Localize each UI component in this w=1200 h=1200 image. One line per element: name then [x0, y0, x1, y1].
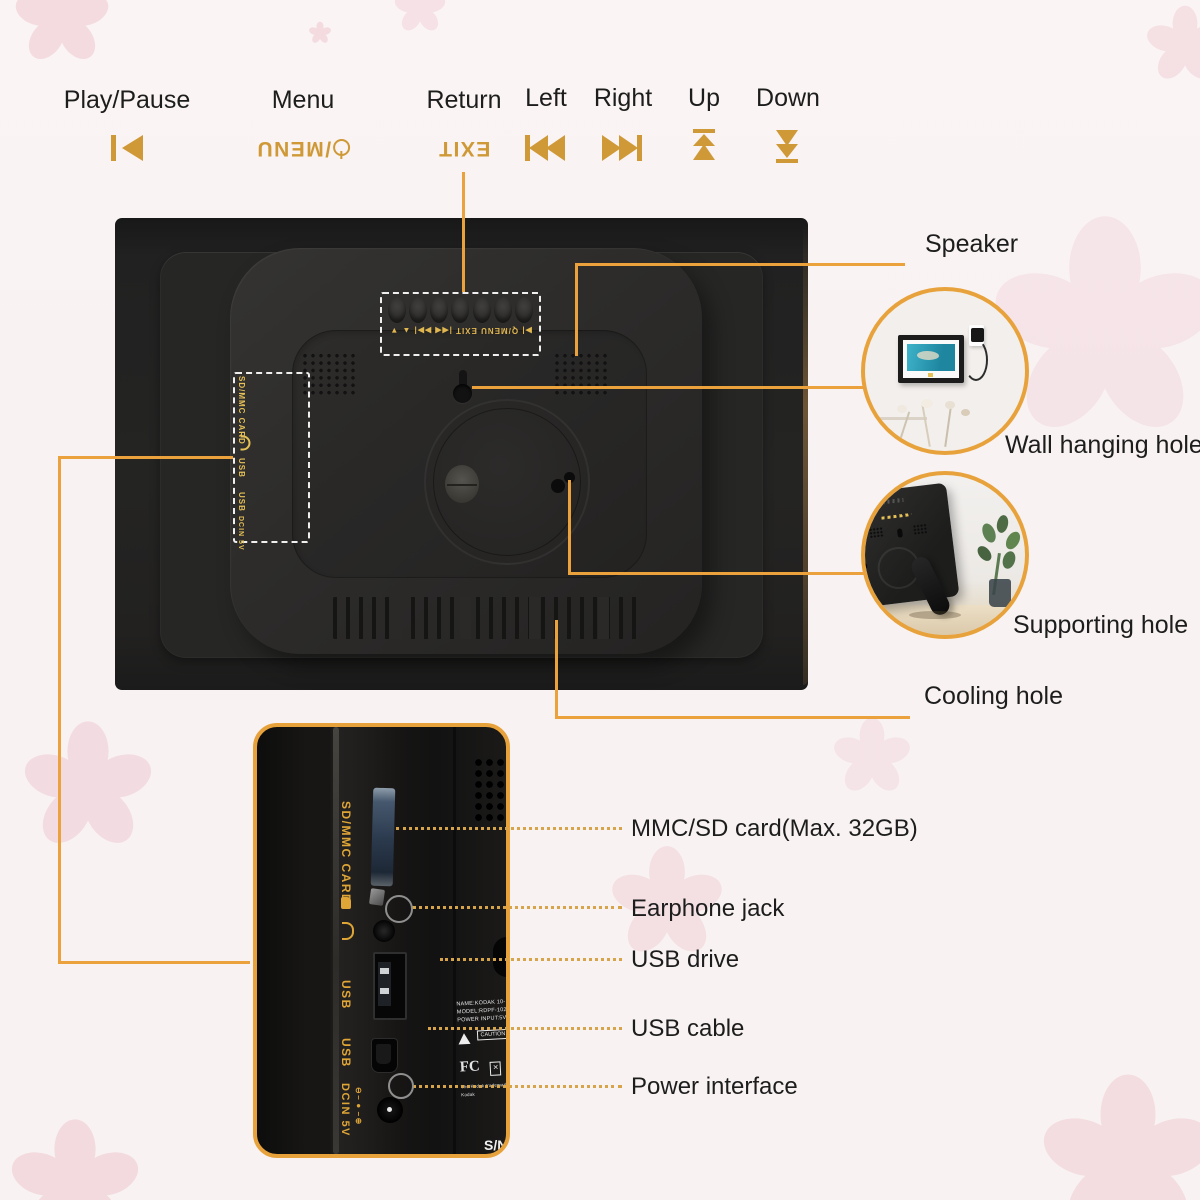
mmc-sd-card-label: MMC/SD card(Max. 32GB): [631, 815, 918, 843]
earphone-ring-marker: [385, 895, 413, 923]
side-ports-callout-line-v: [58, 456, 61, 964]
sticker-power-line: POWER INPUT:5V: [457, 1014, 510, 1025]
support-hole-callout-line-h: [568, 572, 866, 575]
cooling-hole-callout-line-h: [555, 716, 910, 719]
usb-drive-label: USB: [339, 980, 353, 1010]
product-infographic: Play/Pause Menu Return Left Right Up Dow…: [0, 0, 1200, 1200]
usb-silkscreen: USB: [237, 458, 246, 478]
menu-power-icon: /MENU: [256, 131, 350, 165]
exit-text-icon: EXIT: [438, 131, 491, 165]
control-label-play-pause: Play/Pause: [64, 86, 190, 115]
menu-icon-text: /MENU: [256, 136, 331, 160]
power-interface-label: Power interface: [631, 1073, 798, 1101]
earphone-jack-label: Earphone jack: [631, 895, 784, 923]
mini-vent-row: [877, 498, 903, 505]
dc-in-label: DCIN 5V: [339, 1083, 351, 1137]
frame-mat: [903, 340, 959, 378]
return-callout-line: [462, 172, 465, 292]
rear-button: [409, 297, 427, 323]
usb-cable-label-text: USB cable: [631, 1015, 744, 1043]
side-ports-callout-line-h1: [58, 456, 233, 459]
dc-polarity-icon: ⊖–●–⊕: [354, 1087, 363, 1126]
hung-frame: [898, 335, 964, 383]
control-label-menu: Menu: [272, 86, 335, 115]
frame-back-corner: [861, 483, 960, 610]
mini-button-labels: [881, 513, 911, 520]
flower-decoration: [13, 712, 163, 862]
mini-hole: [861, 563, 868, 570]
control-label-right: Right: [594, 84, 652, 113]
power-ring-marker: [388, 1073, 414, 1099]
weee-bin-icon: ✕: [490, 1061, 502, 1076]
rear-button: [451, 297, 469, 323]
button-area-dashed-box: ▶| Q/MENU EXIT |◀◀ ▶▶| ▲ ▼: [380, 292, 541, 356]
closeup-speaker-dots: [473, 757, 505, 825]
control-label-up: Up: [688, 84, 720, 113]
usb-cable-label: USB: [339, 1038, 353, 1068]
skip-back-icon: [525, 131, 565, 165]
stand-screw-knob: [445, 465, 479, 503]
frame-photo: [907, 344, 955, 371]
usb-cable-leader-line: [428, 1027, 622, 1030]
wall-hanging-hole-label: Wall hanging hole: [1005, 431, 1200, 460]
usb2-silkscreen: USB: [237, 492, 246, 512]
exit-icon-text: EXIT: [438, 136, 491, 160]
power-icon: [333, 140, 350, 157]
speaker-callout-line-v: [575, 263, 578, 356]
rear-button-row: [382, 294, 539, 323]
flower-decoration: [7, 0, 117, 73]
flower-decoration: [390, 0, 450, 38]
vent-gap: [598, 597, 609, 639]
sd-card-label: SD/MMC CARD: [339, 801, 353, 904]
usb-drive-leader-line: [440, 958, 622, 961]
side-protrusion: [493, 937, 507, 977]
mini-speaker-right: [913, 523, 928, 535]
wall-hanging-photo: [861, 287, 1029, 455]
leg-shadow: [909, 611, 961, 619]
rear-button: [473, 297, 491, 323]
flower-decoration: [1028, 1062, 1200, 1200]
usb-a-port: [373, 952, 407, 1020]
vent-gap: [460, 597, 471, 639]
usb-drive-label-text: USB drive: [631, 946, 739, 974]
speaker-callout-line-h: [575, 263, 905, 266]
mini-keyhole: [897, 528, 903, 538]
dc-jack: [377, 1097, 403, 1123]
jump-up-icon: [691, 129, 717, 163]
mini-speaker-left: [869, 527, 884, 539]
side-ports-closeup: SD/MMC CARD USB USB DCIN 5V ⊖–●–⊕ NAME:K…: [253, 723, 510, 1158]
side-ports-dashed-box: SD/MMC CARD USB USB DCIN 5V: [233, 372, 310, 543]
power-cable: [964, 339, 988, 381]
flower-decoration: [827, 712, 917, 802]
power-leader-line: [412, 1085, 622, 1088]
earphone-leader-line: [412, 906, 622, 909]
control-label-down: Down: [756, 84, 820, 113]
cooling-hole-label: Cooling hole: [924, 682, 1063, 711]
edge-shade: [453, 727, 456, 1154]
fcc-logo: FC: [459, 1058, 480, 1076]
wall-hanging-hole-circle: [453, 384, 472, 403]
rear-button: [430, 297, 448, 323]
sd-card-silkscreen: SD/MMC CARD: [237, 376, 246, 445]
flower-decoration: [307, 20, 333, 46]
speaker-label: Speaker: [925, 230, 1018, 259]
earphone-icon-closeup: [342, 922, 354, 940]
frame-edge-highlight: [803, 222, 808, 685]
sd-card-slot: [371, 788, 396, 887]
support-hole-callout-line-v: [568, 480, 571, 575]
speaker-grille-right: [553, 352, 609, 396]
wall-hole-callout-line: [472, 386, 864, 389]
swimmer-figure: [917, 351, 939, 360]
sd-leader-line: [396, 827, 622, 830]
dried-flowers: [873, 399, 993, 451]
dc-silkscreen: DCIN 5V: [237, 516, 244, 551]
earphone-jack: [373, 920, 395, 942]
vent-gap: [529, 597, 540, 639]
sd-icon: [341, 897, 351, 909]
serial-number-text: S/N:: [484, 1137, 510, 1153]
jump-down-icon: [774, 129, 800, 163]
earphone-icon: [241, 436, 251, 451]
desk-stand-photo: [861, 471, 1029, 639]
plant: [973, 515, 1025, 615]
vase: [989, 579, 1011, 607]
control-label-return: Return: [426, 86, 501, 115]
rear-button: [515, 297, 533, 323]
rear-button-labels: ▶| Q/MENU EXIT |◀◀ ▶▶| ▲ ▼: [382, 326, 539, 335]
rear-button: [388, 297, 406, 323]
side-ports-callout-line-h2: [58, 961, 250, 964]
cooling-hole-callout-line-v: [555, 620, 558, 719]
skip-forward-icon: [602, 131, 642, 165]
flower-decoration: [0, 1110, 150, 1200]
sd-slot-notch: [369, 888, 385, 906]
mini-usb-port: [371, 1038, 398, 1073]
brand-dot: [928, 373, 933, 377]
flower-decoration: [1140, 0, 1200, 90]
supporting-hole-label: Supporting hole: [1013, 611, 1188, 640]
control-label-left: Left: [525, 84, 567, 113]
supporting-hole: [551, 479, 565, 493]
caution-box: CAUTION: [477, 1029, 508, 1041]
vent-gap: [391, 597, 402, 639]
rear-button: [494, 297, 512, 323]
regulatory-sticker: NAME:KODAK 10- MODEL:RDPF-102 POWER INPU…: [456, 998, 510, 1146]
play-pause-icon: [110, 131, 144, 165]
warning-triangle-icon: [458, 1033, 471, 1045]
